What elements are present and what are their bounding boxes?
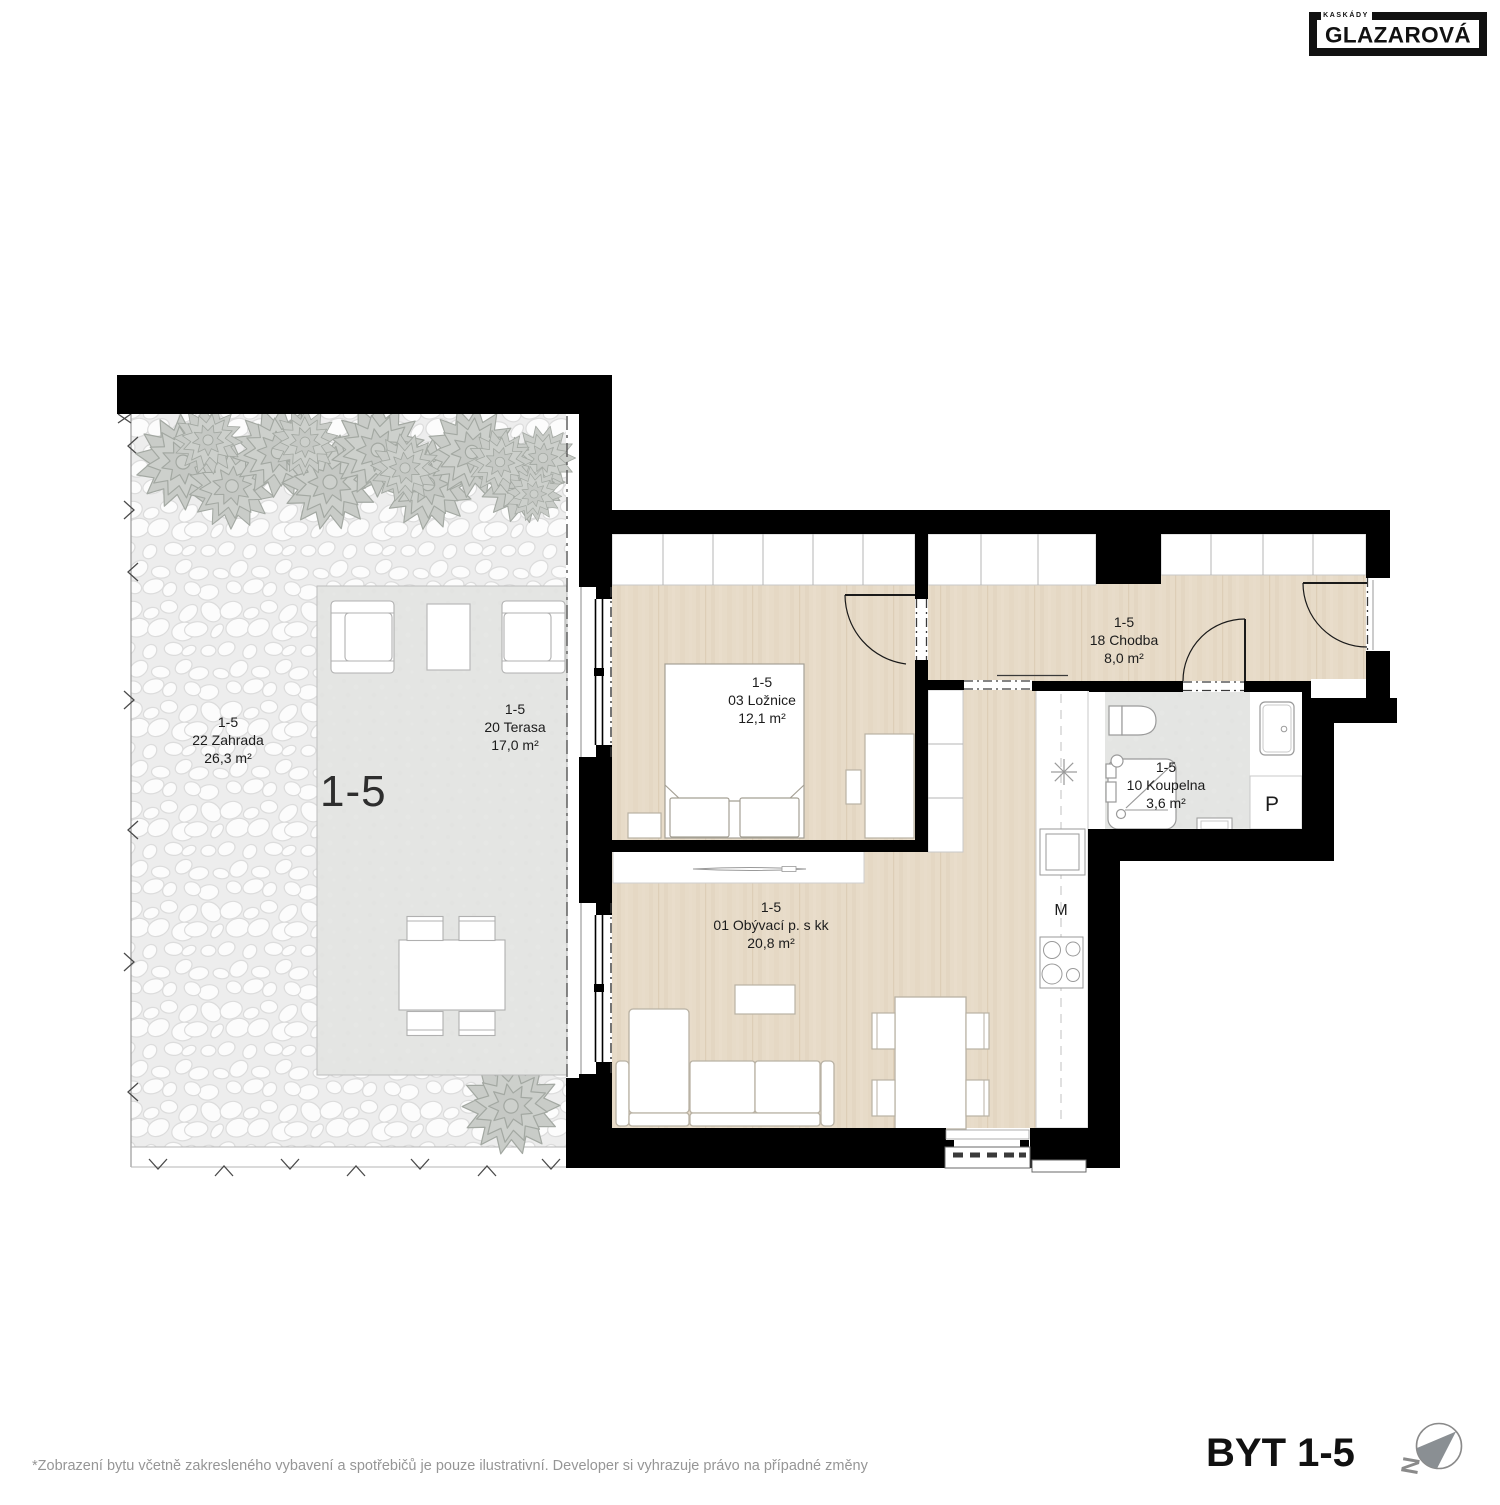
svg-text:BYT 1-5: BYT 1-5	[1206, 1431, 1355, 1475]
svg-text:1-5: 1-5	[320, 767, 387, 816]
svg-text:8,0 m²: 8,0 m²	[1104, 650, 1144, 666]
svg-text:18 Chodba: 18 Chodba	[1090, 632, 1159, 648]
svg-text:20 Terasa: 20 Terasa	[484, 719, 545, 735]
svg-text:22 Zahrada: 22 Zahrada	[192, 732, 264, 748]
svg-text:20,8 m²: 20,8 m²	[747, 935, 795, 951]
svg-text:10 Koupelna: 10 Koupelna	[1127, 777, 1206, 793]
svg-text:1-5: 1-5	[761, 899, 781, 915]
svg-text:GLAZAROVÁ: GLAZAROVÁ	[1325, 23, 1471, 48]
svg-text:26,3 m²: 26,3 m²	[204, 750, 252, 766]
svg-text:1-5: 1-5	[218, 714, 238, 730]
svg-text:12,1 m²: 12,1 m²	[738, 710, 786, 726]
svg-text:N: N	[1395, 1455, 1425, 1477]
svg-text:KASKÁDY: KASKÁDY	[1323, 10, 1369, 19]
svg-text:P: P	[1265, 793, 1279, 816]
svg-text:01 Obývací p. s kk: 01 Obývací p. s kk	[713, 917, 829, 933]
svg-text:17,0 m²: 17,0 m²	[491, 737, 539, 753]
svg-text:M: M	[1054, 902, 1067, 919]
svg-text:3,6 m²: 3,6 m²	[1146, 795, 1186, 811]
svg-text:1-5: 1-5	[505, 701, 525, 717]
svg-text:1-5: 1-5	[752, 674, 772, 690]
svg-text:1-5: 1-5	[1156, 759, 1176, 775]
svg-text:*Zobrazení bytu včetně zakresl: *Zobrazení bytu včetně zakresleného vyba…	[32, 1458, 869, 1474]
svg-text:03 Ložnice: 03 Ložnice	[728, 692, 796, 708]
svg-text:1-5: 1-5	[1114, 614, 1134, 630]
